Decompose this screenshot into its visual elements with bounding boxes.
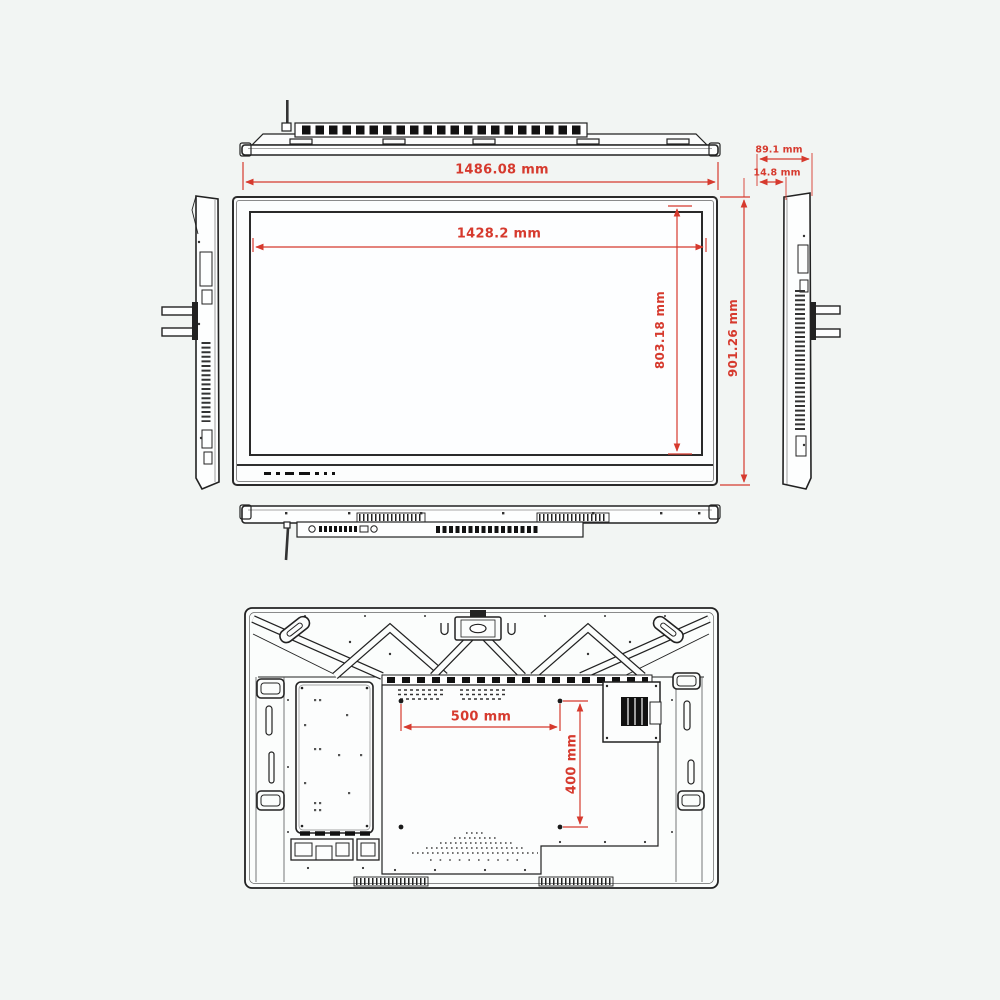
support-truss (253, 619, 709, 677)
screen-area (249, 211, 703, 456)
vent-hole-rows (398, 690, 508, 699)
vesa-horizontal-label: 500 mm (451, 710, 512, 725)
right-side-view-drawing (770, 190, 842, 494)
depth-front-label: 14.8 mm (753, 168, 800, 179)
button-mark (276, 472, 280, 475)
overall-width-label: 1486.08 mm (455, 163, 549, 178)
central-back-plate (382, 685, 658, 874)
rear-connector-box (291, 839, 379, 869)
active-width-label: 1428.2 mm (457, 227, 541, 242)
left-side-view-drawing (158, 192, 230, 494)
button-mark (324, 472, 327, 475)
bottom-vents (357, 513, 609, 522)
vesa-vertical-label: 400 mm (565, 734, 580, 795)
overall-height-label: 901.26 mm (726, 299, 740, 377)
depth-front-dim-line (760, 177, 786, 200)
speaker-holes (412, 833, 538, 860)
port-panel (297, 522, 583, 537)
screw-marks (285, 512, 700, 514)
corner-handle-right (651, 614, 686, 645)
wifi-antenna (282, 100, 291, 131)
wall-bracket-pegs (162, 307, 194, 336)
cable-rail (382, 675, 652, 685)
wall-bracket-pegs (810, 306, 840, 337)
button-mark (299, 472, 310, 475)
center-handle (441, 610, 515, 640)
corner-handle-left (277, 614, 312, 645)
control-buttons (264, 472, 335, 475)
monitor-dimension-diagram: 1486.08 mm 1428.2 mm 803.18 mm 901.26 mm… (0, 0, 1000, 1000)
top-view-drawing (240, 96, 720, 160)
active-height-label: 803.18 mm (653, 291, 667, 369)
wifi-antenna (284, 522, 290, 560)
bezel-divider (237, 464, 713, 466)
rear-view-drawing (240, 602, 720, 892)
dimension-lines-overlay (0, 0, 1000, 1000)
top-vent-slots (295, 123, 587, 137)
bottom-view-drawing (240, 500, 720, 566)
right-edge-features (671, 673, 704, 882)
left-edge-features (256, 677, 289, 882)
depth-total-label: 89.1 mm (755, 145, 802, 156)
ops-module (603, 682, 661, 742)
button-mark (332, 472, 335, 475)
screw-marks (304, 615, 666, 617)
rear-bottom-vents (354, 877, 613, 886)
button-mark (264, 472, 271, 475)
button-mark (315, 472, 319, 475)
left-service-panel (296, 682, 373, 834)
button-mark (285, 472, 294, 475)
